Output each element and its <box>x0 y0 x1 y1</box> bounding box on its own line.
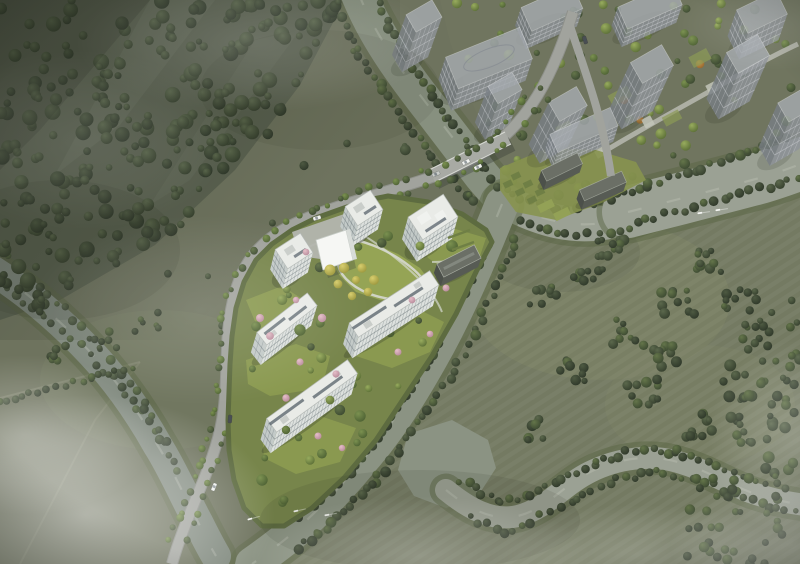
atmosphere-layer <box>0 0 800 564</box>
aerial-site-rendering <box>0 0 800 564</box>
rendering-canvas <box>0 0 800 564</box>
vignette <box>0 0 800 564</box>
